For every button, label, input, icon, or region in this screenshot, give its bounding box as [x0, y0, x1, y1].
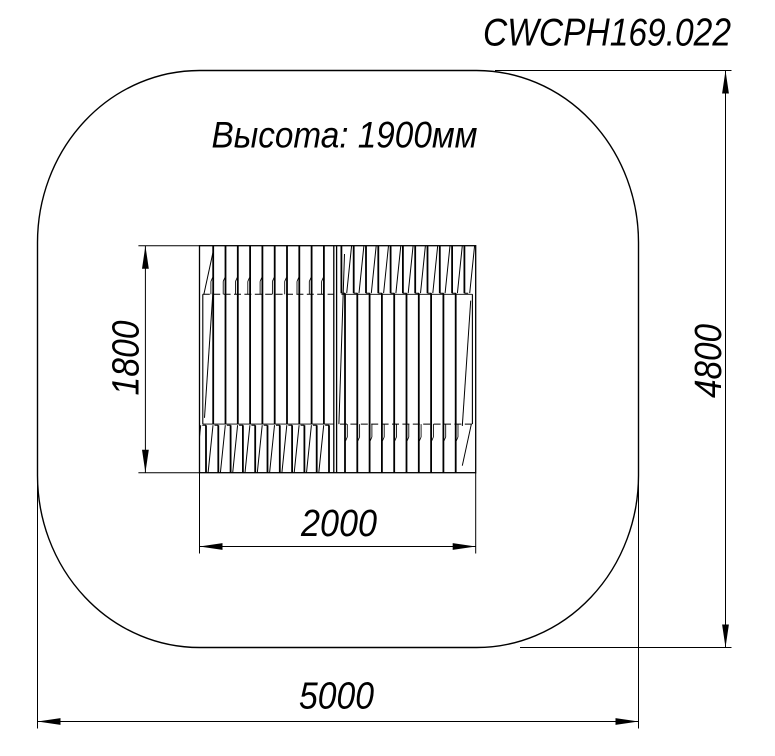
svg-text:4800: 4800 [688, 324, 730, 398]
svg-text:5000: 5000 [299, 676, 374, 718]
svg-text:2000: 2000 [300, 503, 377, 545]
svg-text:1800: 1800 [106, 321, 148, 396]
svg-text:CWCPH169.022: CWCPH169.022 [483, 12, 731, 55]
svg-text:Высота: 1900мм: Высота: 1900мм [212, 115, 478, 156]
